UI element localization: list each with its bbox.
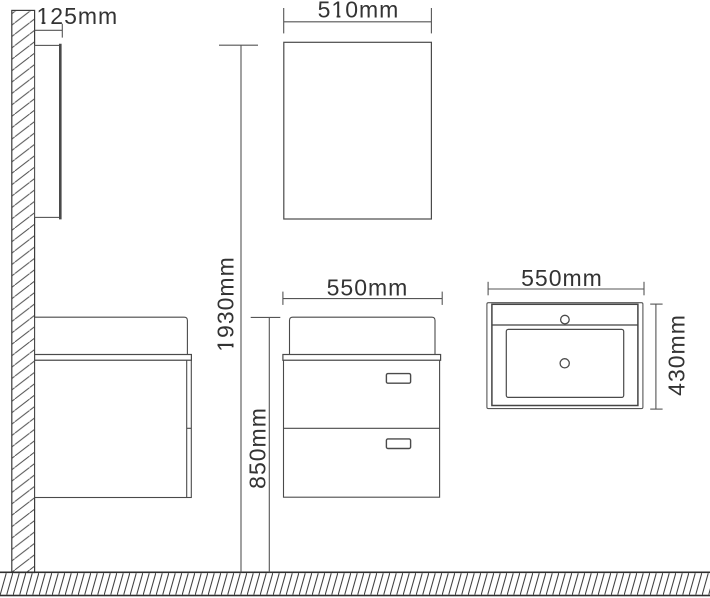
svg-text:510mm: 510mm bbox=[318, 0, 400, 22]
svg-text:550mm: 550mm bbox=[521, 265, 603, 291]
svg-text:430mm: 430mm bbox=[663, 314, 689, 396]
svg-text:850mm: 850mm bbox=[244, 407, 270, 489]
svg-text:550mm: 550mm bbox=[327, 274, 409, 300]
svg-text:125mm: 125mm bbox=[37, 3, 119, 29]
svg-text:1930mm: 1930mm bbox=[213, 256, 239, 351]
